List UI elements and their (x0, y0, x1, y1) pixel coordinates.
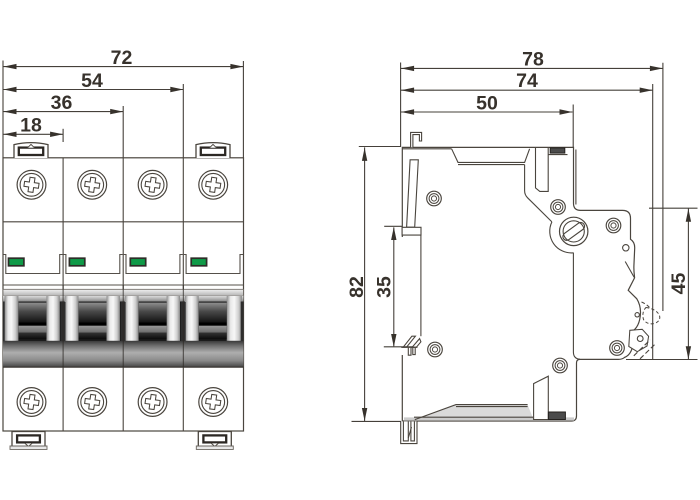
svg-text:50: 50 (476, 92, 498, 114)
svg-text:82: 82 (346, 276, 368, 298)
svg-text:72: 72 (111, 47, 133, 69)
svg-text:35: 35 (373, 276, 395, 298)
svg-text:36: 36 (51, 92, 73, 114)
svg-text:54: 54 (81, 70, 103, 92)
svg-text:78: 78 (522, 49, 544, 71)
svg-text:74: 74 (516, 70, 538, 92)
svg-text:18: 18 (20, 115, 42, 137)
svg-text:45: 45 (668, 273, 690, 295)
